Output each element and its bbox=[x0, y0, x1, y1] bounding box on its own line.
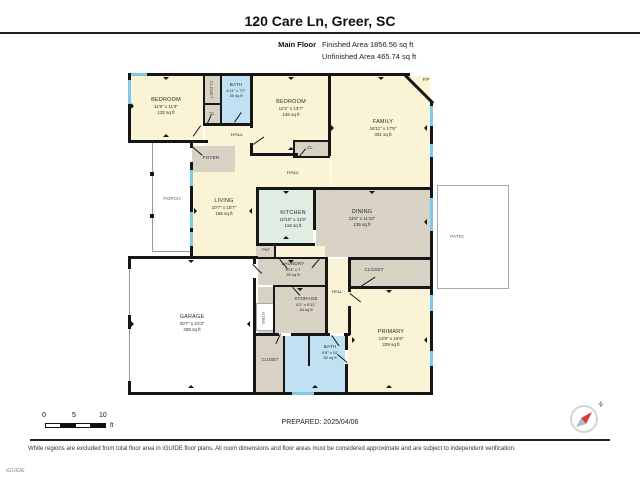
room-label-bath1: BATH 4'11" x 7'2" 35 sq ft bbox=[218, 82, 254, 98]
disclaimer-text: White regions are excluded from total fl… bbox=[28, 446, 628, 452]
garage-door-line bbox=[129, 329, 130, 381]
scale-tick-5: 5 bbox=[72, 412, 76, 419]
room-label-dining: DINING 11'5" x 11'10" 135 sq ft bbox=[332, 209, 392, 228]
room-fill-corridor bbox=[276, 246, 325, 257]
window bbox=[430, 144, 433, 157]
fireplace-label: F/P bbox=[416, 77, 436, 82]
dimension-arrow bbox=[331, 125, 334, 131]
hall-label: HALL bbox=[222, 133, 252, 138]
pantry-label: PNT bbox=[256, 247, 276, 252]
dimension-arrow bbox=[131, 103, 134, 109]
wall bbox=[348, 286, 351, 292]
wall bbox=[128, 381, 131, 395]
wall bbox=[203, 123, 223, 126]
window bbox=[131, 73, 147, 76]
footer-rule bbox=[30, 439, 610, 441]
patio-door bbox=[430, 198, 433, 231]
window bbox=[190, 170, 193, 186]
dimension-arrow bbox=[188, 385, 194, 388]
wall bbox=[328, 75, 331, 156]
wall bbox=[253, 256, 256, 264]
wall bbox=[128, 140, 208, 143]
wall bbox=[308, 336, 310, 366]
dimension-arrow bbox=[163, 134, 169, 137]
porch-edge bbox=[152, 143, 153, 252]
dimension-arrow bbox=[188, 260, 194, 263]
room-label-storage: STORAGE 8'1" x 6'11" 44 sq ft bbox=[276, 296, 336, 312]
scale-bar-segment bbox=[75, 423, 91, 428]
dimension-arrow bbox=[424, 125, 427, 131]
dimension-arrow bbox=[247, 321, 250, 327]
wall bbox=[350, 257, 432, 260]
closet-label: CLOSET bbox=[354, 268, 394, 273]
room-fill-closet-dining bbox=[351, 260, 430, 286]
page-title: 120 Care Ln, Greer, SC bbox=[0, 13, 640, 29]
dimension-arrow bbox=[386, 385, 392, 388]
floorplan-page: 120 Care Ln, Greer, SC Main Floor Finish… bbox=[0, 0, 640, 480]
prepared-date: PREPARED: 2025/04/06 bbox=[240, 419, 400, 426]
wall bbox=[273, 285, 275, 333]
window bbox=[190, 212, 193, 228]
wall bbox=[283, 336, 285, 392]
north-label: N bbox=[597, 401, 604, 408]
wall bbox=[250, 143, 253, 156]
wall bbox=[253, 278, 256, 395]
wall bbox=[256, 187, 259, 245]
dimension-arrow bbox=[131, 321, 134, 327]
compass-needle bbox=[572, 407, 596, 431]
room-label-garage: GARAGE 20'7" x 21'3" 438 sq ft bbox=[162, 314, 222, 333]
dimension-arrow bbox=[297, 288, 303, 291]
wall bbox=[128, 256, 258, 259]
wall bbox=[256, 187, 432, 190]
wall bbox=[128, 257, 131, 269]
window bbox=[430, 106, 433, 126]
scale-tick-0: 0 bbox=[42, 412, 46, 419]
wall bbox=[128, 392, 433, 395]
wall bbox=[222, 123, 253, 126]
wall bbox=[253, 333, 279, 336]
scale-bar-segment bbox=[45, 423, 61, 428]
foyer-label: FOYER bbox=[193, 156, 229, 161]
dimension-arrow bbox=[386, 290, 392, 293]
wall bbox=[128, 73, 410, 76]
finished-area-text: Finished Area 1856.56 sq ft bbox=[322, 40, 482, 49]
scale-bar-segment bbox=[60, 423, 76, 428]
dimension-arrow bbox=[424, 337, 427, 343]
room-label-bath2: BATH 9'8" x 10' 60 sq ft bbox=[312, 344, 348, 360]
room-label-family: FAMILY 16'11" x 17'9" 301 sq ft bbox=[353, 119, 413, 138]
wall bbox=[253, 153, 298, 156]
wall bbox=[345, 364, 348, 392]
wall bbox=[256, 243, 315, 246]
window bbox=[292, 392, 314, 395]
room-label-living: LIVING 10'7" x 15'7" 155 sq ft bbox=[194, 198, 254, 217]
dimension-arrow bbox=[283, 191, 289, 194]
window bbox=[128, 80, 131, 104]
wall bbox=[293, 140, 330, 142]
garage-door-line bbox=[129, 269, 130, 315]
window bbox=[430, 351, 433, 366]
wall bbox=[258, 257, 325, 259]
room-label-kitchen: KITCHEN 10'10" x 11'9" 118 sq ft bbox=[263, 210, 323, 229]
dimension-arrow bbox=[369, 191, 375, 194]
window bbox=[190, 232, 193, 246]
window bbox=[430, 295, 433, 311]
wall bbox=[348, 257, 351, 286]
closet-label: CLOSET bbox=[252, 357, 288, 362]
closet-label-vertical: CLOSET bbox=[209, 78, 214, 102]
dimension-arrow bbox=[352, 337, 355, 343]
dimension-arrow bbox=[288, 147, 294, 150]
room-label-laundry: LAUNDRY 10'3" x 7' 53 sq ft bbox=[263, 261, 323, 277]
dimension-arrow bbox=[288, 77, 294, 80]
room-label-bedroom1: BEDROOM 11'9" x 11'3" 132 sq ft bbox=[136, 97, 196, 116]
wall bbox=[348, 306, 351, 335]
dimension-arrow bbox=[163, 77, 169, 80]
cl-label: CL bbox=[204, 111, 220, 116]
dimension-arrow bbox=[378, 77, 384, 80]
patio-label: PATIO bbox=[439, 235, 475, 240]
cl-label: CL bbox=[302, 145, 318, 150]
scale-tick-10: 10 bbox=[99, 412, 107, 419]
porch-post bbox=[150, 214, 154, 218]
wall bbox=[273, 285, 327, 287]
dimension-arrow bbox=[424, 219, 427, 225]
floor-label: Main Floor bbox=[240, 40, 316, 49]
iguide-watermark: iGUIDE bbox=[6, 468, 25, 474]
compass-icon bbox=[570, 405, 598, 433]
hall-label: HALL bbox=[278, 171, 308, 176]
room-label-bedroom2: BEDROOM 12'2" x 13'7" 148 sq ft bbox=[261, 99, 321, 118]
porch-post bbox=[150, 172, 154, 176]
hall-label: HALL bbox=[326, 289, 348, 294]
room-label-primary: PRIMARY 13'9" x 16'9" 229 sq ft bbox=[361, 329, 421, 348]
dimension-arrow bbox=[312, 385, 318, 388]
scale-bar-segment bbox=[90, 423, 106, 428]
room-fill-closet-primary bbox=[256, 336, 283, 392]
porch-label: PORCH bbox=[154, 197, 190, 202]
header-rule bbox=[0, 32, 640, 34]
porch-edge bbox=[152, 251, 192, 252]
strg-label-vertical: STRG bbox=[261, 306, 266, 330]
dimension-arrow bbox=[283, 236, 289, 239]
scale-unit: ft bbox=[110, 422, 114, 429]
unfinished-area-text: Unfinished Area 465.74 sq ft bbox=[322, 52, 482, 61]
